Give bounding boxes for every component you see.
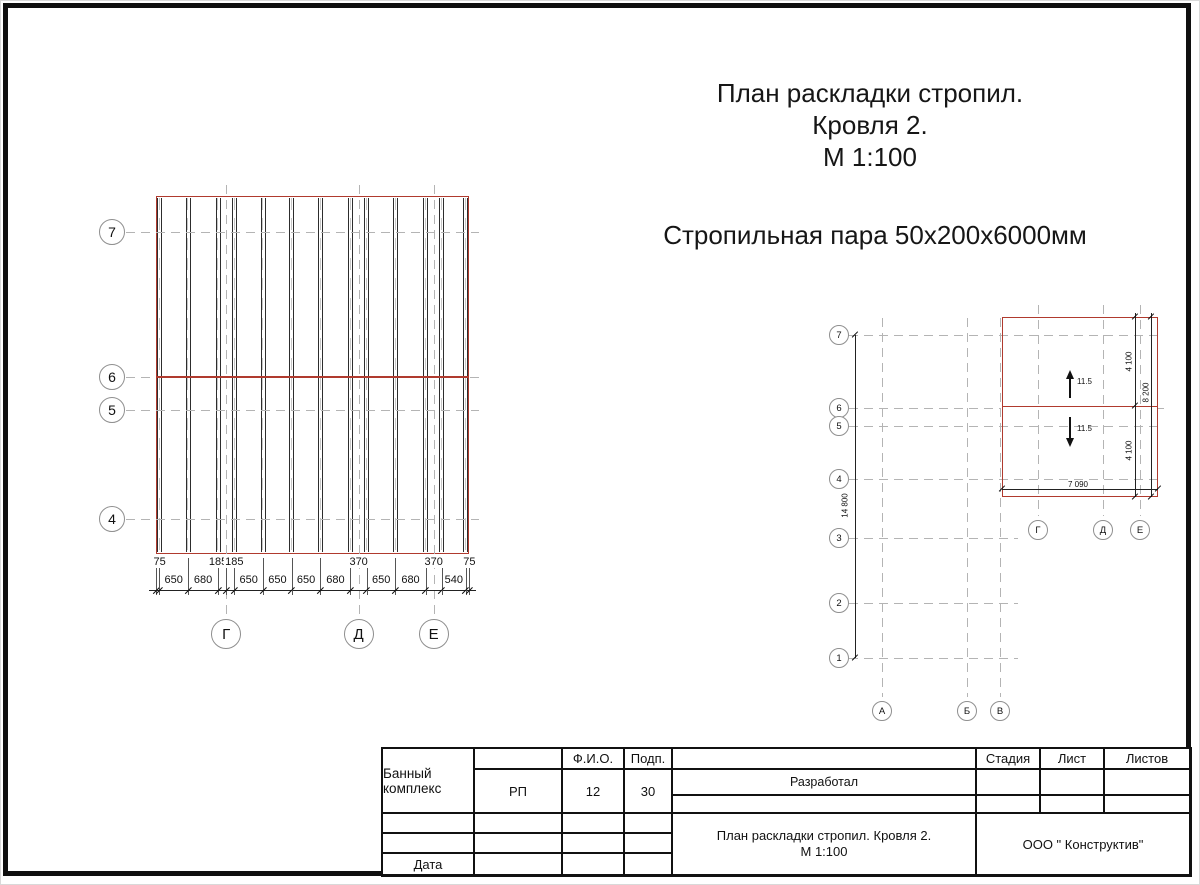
title-line-2: Кровля 2. xyxy=(620,109,1120,141)
titleblock-cell-empty xyxy=(383,834,473,852)
axis-bubble-6: 6 xyxy=(99,364,125,390)
slope-label-down: 11.5 xyxy=(1077,424,1092,433)
titleblock-cell-empty xyxy=(1041,770,1103,794)
titleblock-sheets-value: 30 xyxy=(625,770,671,812)
key-axis-bubble-Б: Б xyxy=(957,701,977,721)
dim-label-lower: 680 xyxy=(400,574,420,586)
axis-bubble-5: 5 xyxy=(99,397,125,423)
key-axis-1-gridline xyxy=(849,658,1018,659)
axis-4-gridline xyxy=(126,519,479,520)
key-axis-bubble-2: 2 xyxy=(829,593,849,613)
titleblock-header-sheets: Листов xyxy=(1105,749,1189,768)
key-dim-lower: 4 100 xyxy=(1125,426,1134,476)
titleblock-cell-empty xyxy=(475,749,561,768)
axis-Е-gridline xyxy=(434,185,435,618)
titleblock-cell-empty xyxy=(563,854,623,874)
slope-label-up: 11.5 xyxy=(1077,377,1092,386)
titleblock-cell-empty xyxy=(563,814,623,832)
titleblock-row-developed: Разработал xyxy=(673,770,975,794)
titleblock-cell-empty xyxy=(563,834,623,852)
drawing-title: План раскладки стропил. Кровля 2. М 1:10… xyxy=(620,77,1120,173)
key-axis-Б-gridline xyxy=(967,318,968,697)
titleblock-cell-empty xyxy=(475,854,561,874)
sheet-title-line2: М 1:100 xyxy=(801,844,848,860)
key-axis-bubble-Д: Д xyxy=(1093,520,1113,540)
title-line-1: План раскладки стропил. xyxy=(620,77,1120,109)
key-axis-bubble-А: А xyxy=(872,701,892,721)
key-axis-bubble-Е: Е xyxy=(1130,520,1150,540)
slope-arrow-up-head xyxy=(1066,370,1074,379)
axis-6-gridline-left xyxy=(126,377,156,378)
rafter-pair-11 xyxy=(423,198,428,552)
key-axis-В-gridline xyxy=(1000,318,1001,697)
key-axis-2-gridline xyxy=(849,603,1018,604)
axis-7-gridline xyxy=(126,232,479,233)
key-axis-3-gridline xyxy=(849,538,1018,539)
rafter-pair-1 xyxy=(157,198,162,552)
axis-bubble-Г: Г xyxy=(211,619,241,649)
rafter-pair-10 xyxy=(393,198,398,552)
key-dim-upper: 4 100 xyxy=(1125,337,1134,387)
key-axis-bubble-1: 1 xyxy=(829,648,849,668)
dim-label-lower: 650 xyxy=(371,574,391,586)
rafter-pair-13 xyxy=(463,198,468,552)
axis-bubble-Д: Д xyxy=(344,619,374,649)
dim-label-lower: 680 xyxy=(193,574,213,586)
rafter-pair-12 xyxy=(439,198,444,552)
titleblock-cell-empty xyxy=(673,749,975,768)
titleblock-sheet-value: 12 xyxy=(563,770,623,812)
titleblock-cell-empty xyxy=(383,814,473,832)
titleblock-header-stage: Стадия xyxy=(977,749,1039,768)
key-axis-6-gridline-stub xyxy=(1158,408,1164,409)
titleblock-cell-empty xyxy=(977,796,1039,812)
key-axis-bubble-В: В xyxy=(990,701,1010,721)
titleblock-row-date: Дата xyxy=(383,854,473,874)
titleblock-cell-empty xyxy=(475,814,561,832)
key-dim-total: 8 200 xyxy=(1142,368,1151,418)
rafter-pair-6 xyxy=(289,198,294,552)
key-dim-total-line xyxy=(1151,313,1152,497)
key-axis-bubble-Г: Г xyxy=(1028,520,1048,540)
slope-arrow-up-shaft xyxy=(1069,379,1070,398)
titleblock-header-podp: Подп. xyxy=(625,749,671,768)
titleblock-stage-value: РП xyxy=(475,770,561,812)
titleblock-cell-empty xyxy=(1105,796,1189,812)
axis-bubble-7: 7 xyxy=(99,219,125,245)
key-axis-bubble-6: 6 xyxy=(829,398,849,418)
titleblock-cell-empty xyxy=(977,770,1039,794)
axis-5-gridline xyxy=(126,410,479,411)
titleblock-header-fio: Ф.И.О. xyxy=(563,749,623,768)
axis-Д-gridline xyxy=(359,185,360,618)
dim-label-upper: 75 xyxy=(462,556,476,568)
dim-label-lower: 680 xyxy=(325,574,345,586)
key-dim-width: 7 090 xyxy=(1067,480,1089,489)
rafter-pair-2 xyxy=(186,198,191,552)
sheet-title-line1: План раскладки стропил. Кровля 2. xyxy=(717,828,931,844)
rafter-pair-9 xyxy=(364,198,369,552)
key-dim-total-height: 14 800 xyxy=(841,481,850,531)
slope-arrow-down-shaft xyxy=(1069,417,1070,438)
rafter-pair-4 xyxy=(232,198,237,552)
dim-label-upper: 370 xyxy=(423,556,443,568)
titleblock-cell-empty xyxy=(475,834,561,852)
titleblock-cell-empty xyxy=(1105,770,1189,794)
rafter-pair-8 xyxy=(348,198,353,552)
key-axis-bubble-5: 5 xyxy=(829,416,849,436)
titleblock-header-sheet: Лист xyxy=(1041,749,1103,768)
dim-label-lower: 650 xyxy=(239,574,259,586)
key-axis-bubble-7: 7 xyxy=(829,325,849,345)
axis-6-gridline-right xyxy=(470,377,479,378)
titleblock-cell-empty xyxy=(1041,796,1103,812)
dim-label-upper: 75 xyxy=(153,556,167,568)
axis-Г-gridline xyxy=(226,185,227,618)
dim-label-lower: 650 xyxy=(296,574,316,586)
titleblock-cell-empty xyxy=(625,814,671,832)
titleblock-cell-empty xyxy=(625,854,671,874)
key-axis-bubble-3: 3 xyxy=(829,528,849,548)
title-block: Ф.И.О. Подп. Банный комплекс Стадия Лист… xyxy=(381,747,1192,877)
key-axis-А-gridline xyxy=(882,318,883,697)
titleblock-cell-empty xyxy=(625,834,671,852)
axis-bubble-4: 4 xyxy=(99,506,125,532)
dim-label-upper: 370 xyxy=(348,556,368,568)
rafter-pair-5 xyxy=(261,198,266,552)
key-dim-height-line xyxy=(855,335,856,658)
dim-label-upper: 185 xyxy=(224,556,244,568)
rafter-pair-7 xyxy=(318,198,323,552)
slope-arrow-down-head xyxy=(1066,438,1074,447)
axis-bubble-Е: Е xyxy=(419,619,449,649)
titleblock-cell-empty xyxy=(673,796,975,812)
dim-label-lower: 650 xyxy=(267,574,287,586)
key-axis-6-gridline xyxy=(849,408,1000,409)
dim-label-lower: 650 xyxy=(163,574,183,586)
drawing-subtitle: Стропильная пара 50х200х6000мм xyxy=(615,220,1135,251)
titleblock-project-name: Банный комплекс xyxy=(383,749,473,812)
title-line-3: М 1:100 xyxy=(620,141,1120,173)
drawing-sheet: План раскладки стропил. Кровля 2. М 1:10… xyxy=(0,0,1200,885)
titleblock-company: ООО " Конструктив" xyxy=(977,814,1189,874)
rafter-pair-3 xyxy=(216,198,221,552)
dim-label-lower: 540 xyxy=(444,574,464,586)
ridge-wall-line-axis-6 xyxy=(156,376,469,378)
titleblock-sheet-title: План раскладки стропил. Кровля 2. М 1:10… xyxy=(673,814,975,874)
